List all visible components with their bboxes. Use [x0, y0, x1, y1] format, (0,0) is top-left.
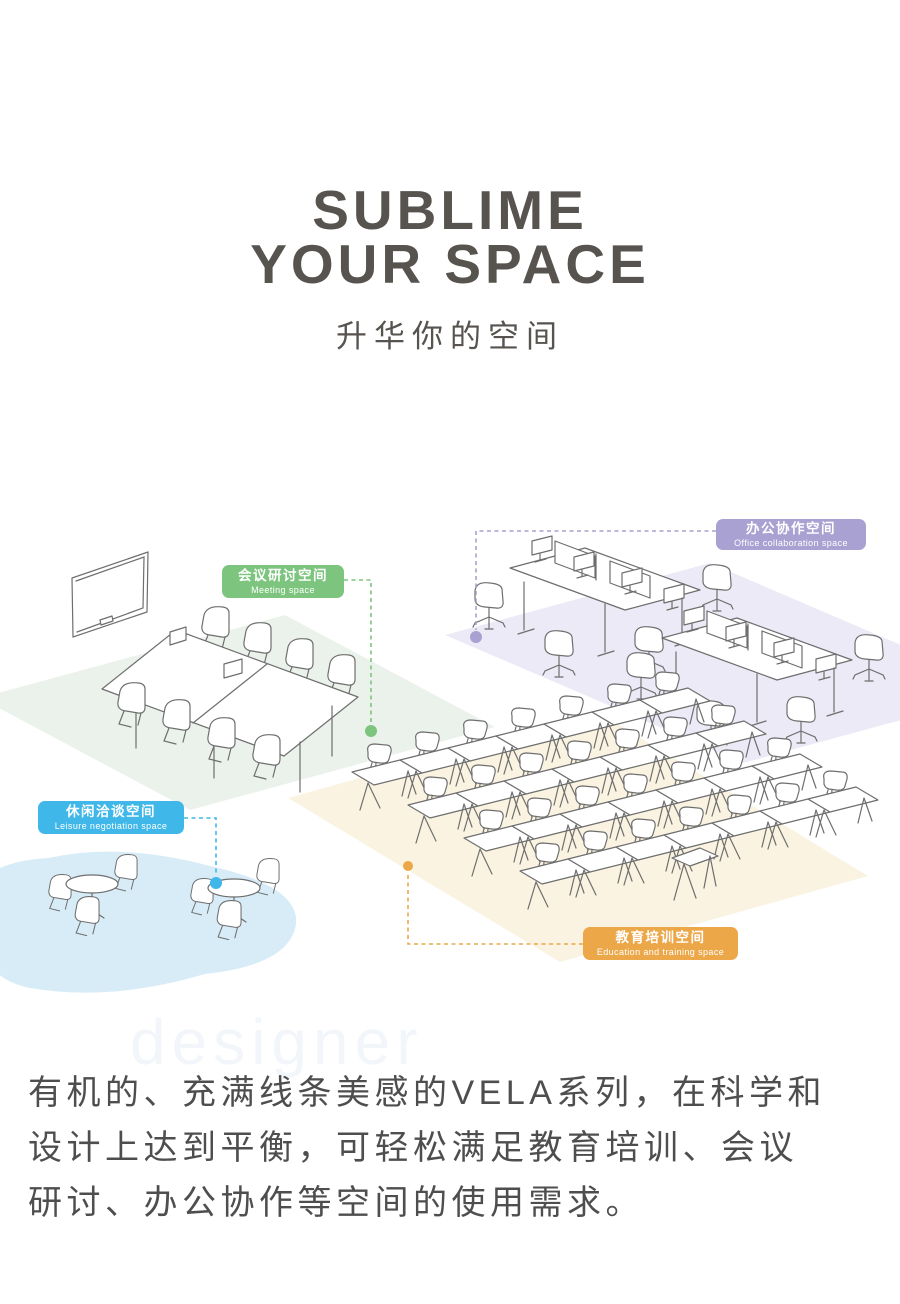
zone-label-training-cn: 教育培训空间: [583, 930, 738, 946]
zone-label-leisure-en: Leisure negotiation space: [38, 821, 184, 831]
meeting-dot: [365, 725, 377, 737]
zone-label-leisure: 休闲洽谈空间 Leisure negotiation space: [38, 801, 184, 834]
page-title: SUBLIME YOUR SPACE: [0, 183, 900, 291]
title-line-2: YOUR SPACE: [0, 237, 900, 291]
leisure-dot: [210, 877, 222, 889]
tv-screen-icon: [72, 552, 148, 637]
space-illustration: 会议研讨空间 Meeting space 办公协作空间 Office colla…: [0, 480, 900, 1020]
zone-label-meeting-cn: 会议研讨空间: [222, 568, 344, 584]
office-dot: [470, 631, 482, 643]
page-subtitle: 升华你的空间: [0, 311, 900, 356]
zone-label-leisure-cn: 休闲洽谈空间: [38, 804, 184, 820]
page: SUBLIME YOUR SPACE 升华你的空间 designer: [0, 0, 900, 1304]
training-dot: [403, 861, 413, 871]
description-paragraph: 有机的、充满线条美感的VELA系列，在科学和 设计上达到平衡，可轻松满足教育培训…: [28, 1066, 874, 1231]
zone-label-office-en: Office collaboration space: [716, 538, 866, 548]
title-line-1: SUBLIME: [0, 183, 900, 237]
space-illustration-svg: [0, 480, 900, 1020]
zone-label-training: 教育培训空间 Education and training space: [583, 927, 738, 960]
zone-label-office-cn: 办公协作空间: [716, 521, 866, 537]
zone-label-training-en: Education and training space: [583, 947, 738, 957]
zone-label-meeting: 会议研讨空间 Meeting space: [222, 565, 344, 598]
leisure-floor: [0, 852, 296, 993]
zone-label-office: 办公协作空间 Office collaboration space: [716, 519, 866, 550]
zone-label-meeting-en: Meeting space: [222, 585, 344, 595]
